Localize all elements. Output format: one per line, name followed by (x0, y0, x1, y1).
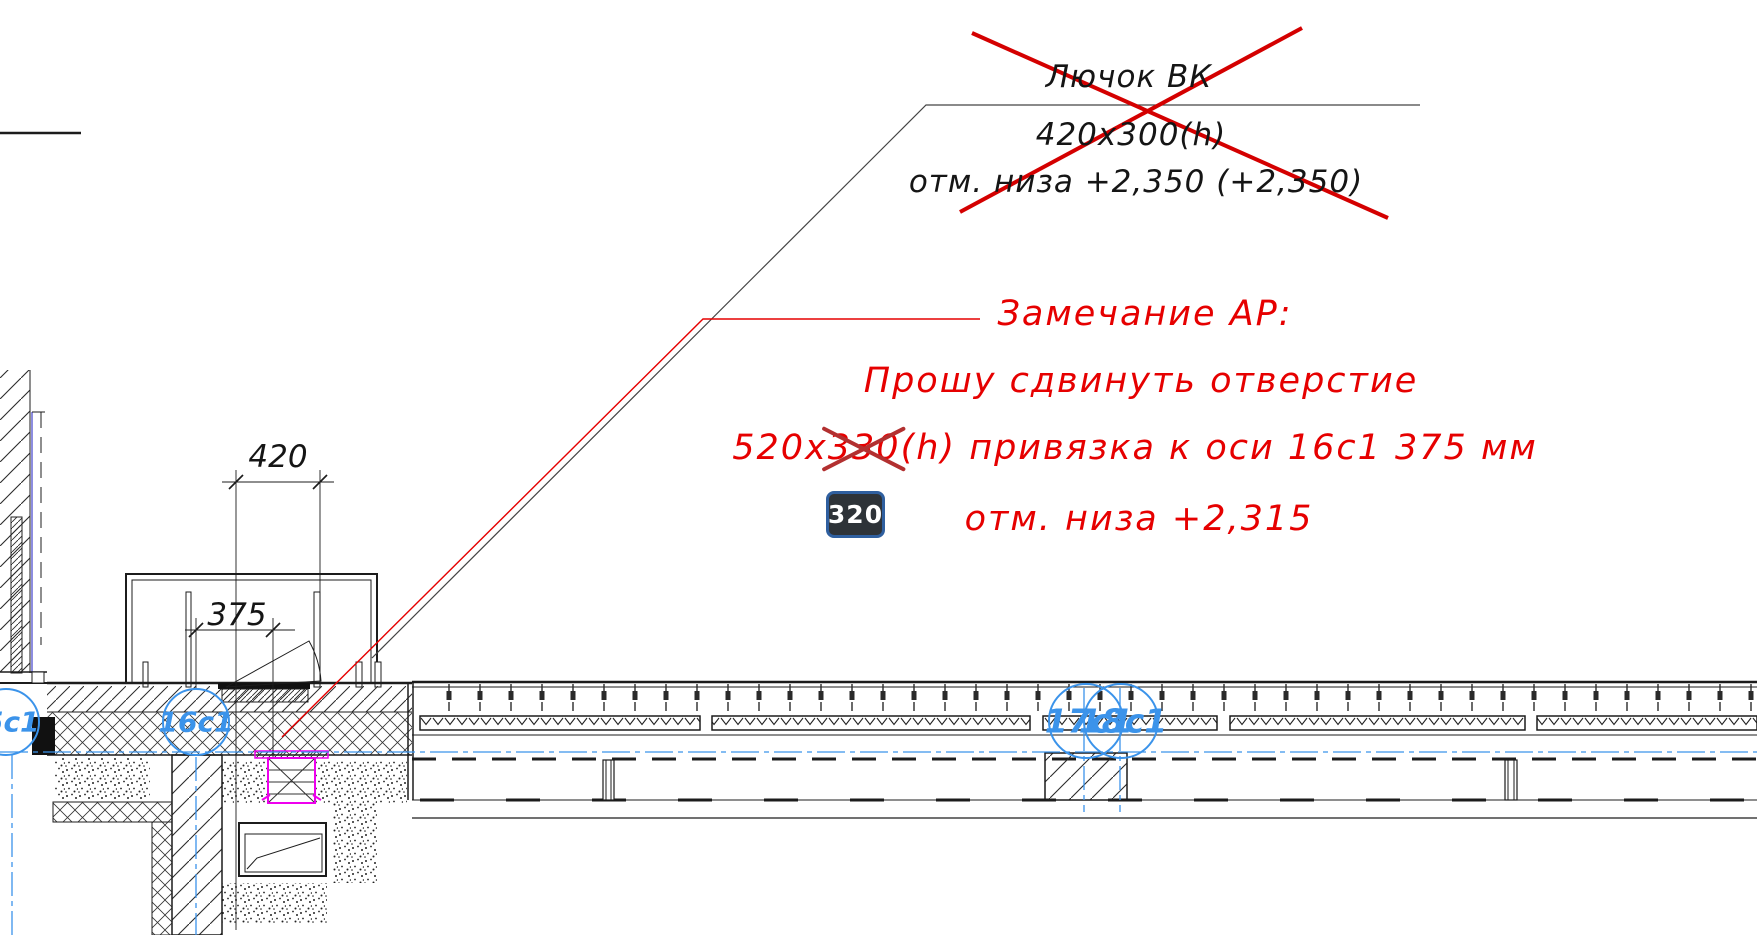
ap-note-size-line: 520х330(h) привязка к оси 16с1 375 мм (732, 429, 1538, 468)
axis-label-16s1: 16с1 (158, 706, 233, 739)
ap-note-title: Замечание АР: (997, 295, 1292, 334)
left-wall-section (0, 133, 81, 683)
dimension-edit-badge[interactable]: 320 (826, 491, 885, 538)
dimension-edit-value: 320 (828, 500, 883, 529)
ap-note-elevation: отм. низа +2,315 (965, 500, 1314, 539)
struck-old-height: 330 (828, 429, 901, 468)
cad-viewport[interactable]: Лючок ВК 420х300(h) отм. низа +2,350 (+2… (0, 0, 1757, 935)
axis-label-18s1: 18с1 (1079, 702, 1167, 741)
old-note-size: 420х300(h) (1036, 118, 1227, 152)
ap-note-request: Прошу сдвинуть отверстие (864, 362, 1418, 401)
old-note-title: Лючок ВК (1046, 60, 1213, 94)
axis-label-15s1: 15с1 (0, 706, 40, 739)
dim-420: 420 (248, 440, 307, 474)
size-prefix: 520х (732, 428, 828, 468)
old-note-elevation: отм. низа +2,350 (+2,350) (909, 165, 1363, 199)
size-suffix: (h) привязка к оси 16с1 375 мм (901, 428, 1538, 468)
dim-375: 375 (207, 598, 266, 632)
